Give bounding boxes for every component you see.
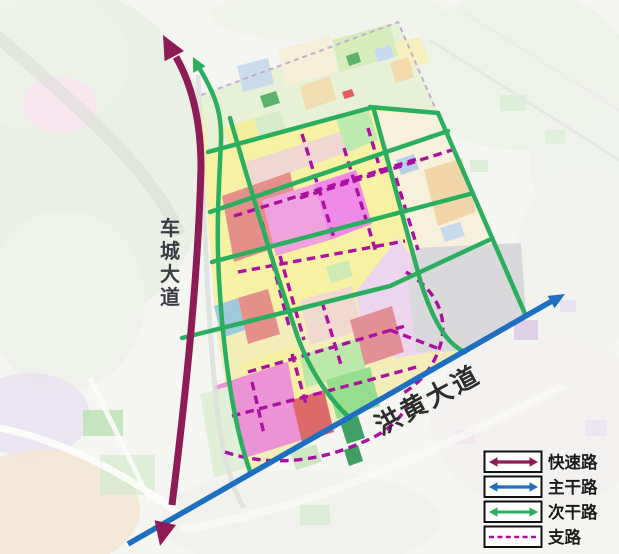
legend-item-expressway: 快速路 [485, 452, 599, 473]
legend-label: 次干路 [548, 502, 598, 522]
legend-item-arterial: 主干路 [485, 477, 599, 498]
road-network-map: 车 城 大 道 洪黄大道 快速路 主干路 次干路 [0, 0, 619, 554]
avenue-left-char-1: 车 [160, 216, 180, 240]
road-plan-screenshot: 车 城 大 道 洪黄大道 快速路 主干路 次干路 [0, 0, 619, 554]
legend-label: 主干路 [548, 477, 598, 497]
legend-item-branch: 支路 [485, 527, 582, 548]
legend-label: 快速路 [548, 452, 598, 472]
avenue-left-char-4: 道 [160, 285, 180, 309]
avenue-left-char-3: 大 [160, 263, 180, 286]
avenue-left-char-2: 城 [160, 239, 180, 263]
legend-label: 支路 [548, 527, 582, 547]
avenue-label-left: 车 城 大 道 [160, 216, 180, 309]
legend-item-secondary: 次干路 [485, 502, 599, 523]
